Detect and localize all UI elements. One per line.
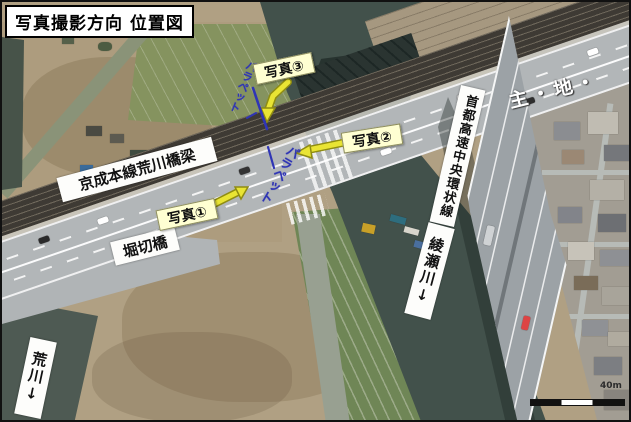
- page-title: 写真撮影方向 位置図: [5, 5, 194, 38]
- annotation-arrows: [2, 2, 631, 422]
- photo3-arrow: [261, 82, 288, 122]
- photo1-arrow: [212, 187, 248, 205]
- photo2-arrow: [296, 143, 342, 158]
- aerial-photo-map: パラペット パラペット 主・地・ 京成本線荒川橋梁 堀切橋 首都高速中央環状線 …: [0, 0, 631, 422]
- frontage-road-north: [413, 0, 631, 1]
- scale-text: 40m: [600, 381, 622, 391]
- parapet-mark-tick: [247, 113, 256, 118]
- scale-bar: [530, 399, 625, 406]
